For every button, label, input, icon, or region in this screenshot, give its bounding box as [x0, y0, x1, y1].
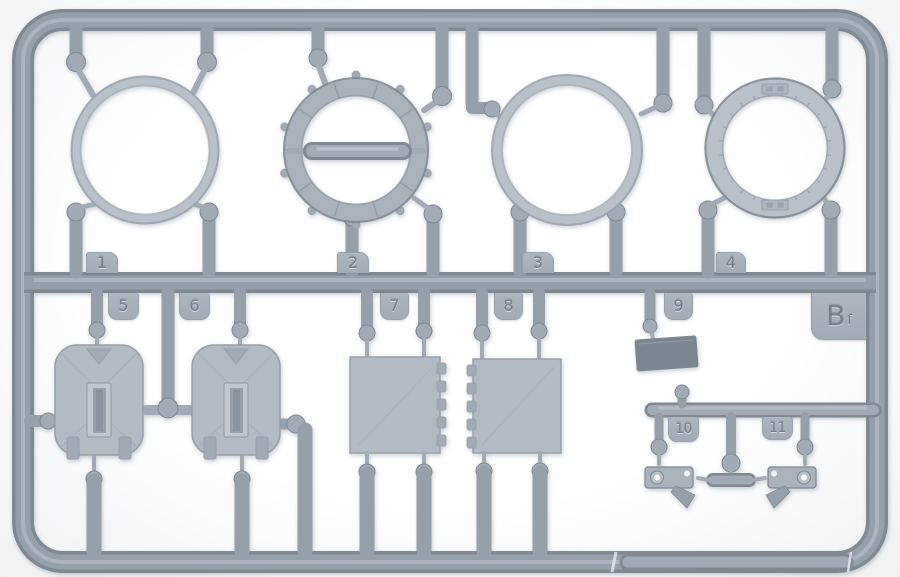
sprue-artwork	[0, 0, 900, 577]
part-number: 2	[348, 255, 358, 271]
hinge-knuckle	[437, 381, 446, 392]
part-10-tow-hook	[645, 467, 695, 508]
part-number-tag-8: 8	[494, 293, 523, 320]
part-number-tag-11: 11	[762, 417, 793, 440]
sprue-photo: 1 2 3 4 5 6 7 8 9 10 11 B f	[0, 0, 900, 577]
hinge-knuckle	[467, 419, 476, 430]
part-number: 7	[389, 298, 399, 314]
hinge-tab	[204, 437, 216, 459]
rim-stamp-top	[762, 84, 788, 94]
hinge-tab	[67, 437, 79, 459]
part-number-tag-5: 5	[108, 293, 139, 320]
part-number: 3	[533, 255, 543, 271]
hinge-knuckle	[467, 383, 476, 394]
part-number-tag-9: 9	[664, 293, 693, 320]
part-6-hatch	[192, 345, 280, 459]
bottom-runner-joint	[612, 552, 851, 572]
part-11-tow-hook	[766, 467, 816, 508]
rim-stamp-bottom	[762, 200, 788, 210]
hinge-tab	[256, 437, 268, 459]
sprue-letter-tag: B f	[811, 293, 866, 340]
center-runner	[24, 280, 876, 283]
part-number: 4	[726, 255, 736, 271]
hinge-knuckle	[437, 435, 446, 446]
hinge-knuckle	[467, 437, 476, 448]
part-8-hinged-panel	[467, 293, 561, 551]
sprue-letter: B	[826, 302, 845, 330]
hook-tip	[671, 486, 695, 508]
part-number: 10	[675, 422, 692, 436]
center-sprue-bar	[290, 149, 423, 151]
part-number: 6	[189, 298, 199, 314]
part-3-tire-ring	[492, 75, 642, 225]
part-number-tag-1: 1	[86, 252, 118, 273]
part-number-tag-3: 3	[522, 252, 554, 273]
sprue-letter-suffix: f	[847, 314, 852, 327]
part-7-hinged-panel	[350, 293, 446, 551]
part-2-toothed-wheel-ring	[280, 71, 433, 229]
part-number-tag-6: 6	[179, 293, 210, 320]
hinge-knuckle	[467, 365, 476, 376]
hook-tip	[766, 486, 790, 508]
part-number: 5	[118, 298, 128, 314]
hinge-knuckle	[467, 401, 476, 412]
part-1-tire-ring	[72, 77, 219, 224]
part-number-tag-4: 4	[716, 252, 746, 273]
part-number: 9	[673, 298, 683, 314]
part-number: 8	[503, 298, 513, 314]
part-number-tag-2: 2	[337, 252, 369, 273]
part-number-tag-10: 10	[668, 417, 699, 442]
hinge-knuckle	[437, 399, 446, 410]
hinge-knuckle	[437, 363, 446, 374]
part-number: 1	[97, 255, 107, 271]
part-number: 11	[769, 421, 786, 435]
part-4-wheel-rim-ring	[706, 79, 845, 218]
hinge-knuckle	[437, 417, 446, 428]
hinge-tab	[119, 437, 131, 459]
part-number-tag-7: 7	[380, 293, 409, 320]
part-5-hatch	[55, 345, 143, 459]
